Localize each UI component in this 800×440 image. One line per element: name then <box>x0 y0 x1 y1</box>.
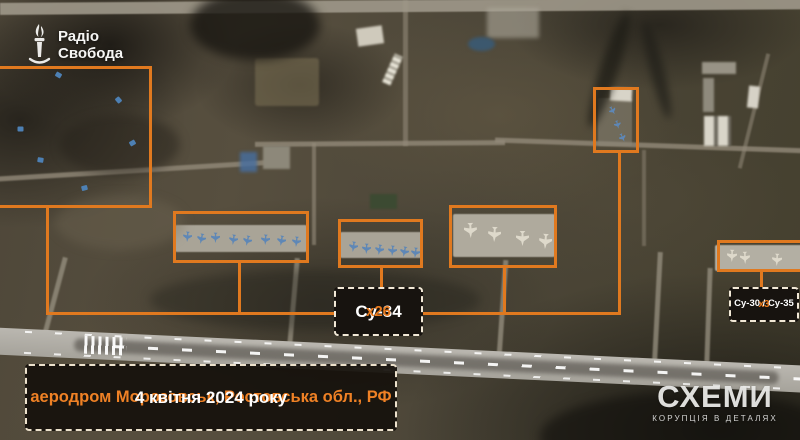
annotation-box-apron-center <box>338 219 423 268</box>
label-su30-su35: Су-30 / Су-35 х3 <box>729 287 799 322</box>
annotation-connector-drop-apron-east <box>503 268 506 312</box>
annotation-box-apron-west <box>173 211 309 263</box>
schemes-subtitle: КОРУПЦІЯ В ДЕТАЛЯХ <box>650 414 780 423</box>
annotation-box-apron-east <box>449 205 557 268</box>
schemes-logo: СХЕМИ КОРУПЦІЯ В ДЕТАЛЯХ <box>650 381 780 423</box>
caption-box: аеродром Морозовськ, Ростовська обл., РФ… <box>25 364 397 431</box>
annotation-connector-rail-east <box>423 312 621 315</box>
radio-svoboda-line1: Радіо <box>58 29 123 46</box>
annotation-connector-drop-northeast-site <box>618 153 621 314</box>
annotation-box-far-east-apron <box>717 240 800 272</box>
schemes-title: СХЕМИ <box>650 381 780 412</box>
caption-date: 4 квітня 2024 року <box>135 388 287 408</box>
annotated-satellite-image: Су-34 х26 Су-30 / Су-35 х3 аеродром Моро… <box>0 0 800 440</box>
radio-svoboda-line2: Свобода <box>58 46 123 63</box>
annotation-connector-drop-apron-west <box>238 263 241 312</box>
torch-icon <box>28 24 51 68</box>
annotation-connector-drop-vehicle-park <box>46 208 49 312</box>
label-su30-su35-count: х3 <box>758 299 769 311</box>
annotation-connector-drop-far-east <box>760 272 763 287</box>
radio-svoboda-wordmark: Радіо Свобода <box>58 29 123 63</box>
annotation-box-vehicle-park <box>0 66 152 208</box>
annotation-connector-drop-apron-center <box>380 268 383 287</box>
annotation-connector-rail-west <box>46 312 334 315</box>
label-su34: Су-34 х26 <box>334 287 423 336</box>
label-su34-count: х26 <box>366 303 391 320</box>
radio-svoboda-logo: Радіо Свобода <box>28 24 123 68</box>
annotation-box-northeast-site <box>593 87 639 153</box>
